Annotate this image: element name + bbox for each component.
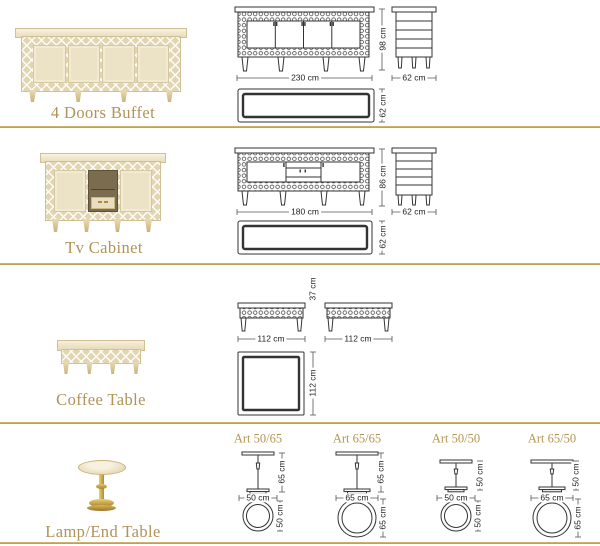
- tv-side-view-drawing: [392, 148, 436, 205]
- drawer-handle: [104, 201, 108, 203]
- tv-cabinet-caption: Tv Cabinet: [24, 238, 184, 258]
- variant4-diameter-label: 65 cm: [573, 504, 582, 531]
- variant3-height-label: 50 cm: [475, 461, 484, 488]
- section-lamp-table: Lamp/End Table Art 50/65 Art 65/65 Art 5…: [0, 425, 600, 542]
- tv-open-shelf: [88, 170, 118, 212]
- tv-door-left: [54, 170, 86, 212]
- lamp-photo-knob: [96, 484, 107, 489]
- buffet-photo-doors: [33, 45, 169, 83]
- buffet-photo-body: [21, 36, 181, 92]
- coffee-width-label: 112 cm: [255, 334, 286, 343]
- buffet-side-view-drawing: [392, 7, 436, 68]
- buffet-width-label: 230 cm: [289, 73, 321, 82]
- tv-top-view-drawing: [238, 221, 372, 254]
- coffee-leg: [86, 362, 92, 374]
- coffee-height-label: 37 cm: [308, 275, 317, 302]
- tv-leg: [114, 219, 121, 232]
- tv-side-width-label: 62 cm: [400, 207, 427, 216]
- variant1-width-label: 50 cm: [244, 493, 271, 502]
- buffet-door: [68, 45, 101, 83]
- coffee-side-width-label: 112 cm: [342, 334, 373, 343]
- variant1-height-label: 65 cm: [277, 458, 286, 485]
- buffet-door: [33, 45, 66, 83]
- buffet-height-label: 98 cm: [378, 25, 387, 52]
- tv-leg: [145, 219, 152, 232]
- tv-drawer: [91, 197, 115, 209]
- variant2-width-label: 65 cm: [343, 493, 370, 502]
- bottom-divider: [0, 542, 600, 544]
- tv-photo-legs: [52, 219, 152, 232]
- buffet-drawings: [230, 0, 600, 126]
- coffee-photo-legs: [63, 362, 139, 374]
- tv-cabinet-drawings: [230, 128, 600, 263]
- section-tv-cabinet: Tv Cabinet: [0, 128, 600, 263]
- tv-photo-inner: [54, 170, 152, 212]
- variant4-height-label: 50 cm: [571, 461, 580, 488]
- tv-front-view-drawing: [235, 148, 374, 205]
- lamp-table-caption: Lamp/End Table: [13, 522, 193, 542]
- buffet-side-width-label: 62 cm: [400, 73, 427, 82]
- coffee-leg: [63, 362, 69, 374]
- tv-door-right: [120, 170, 152, 212]
- section-divider: [0, 422, 600, 424]
- buffet-leg: [166, 90, 173, 102]
- variant1-diameter-label: 50 cm: [275, 502, 284, 529]
- buffet-front-view-drawing: [235, 7, 374, 71]
- section-coffee-table: Coffee Table: [0, 265, 600, 422]
- buffet-leg: [120, 90, 127, 102]
- lamp-photo-top: [78, 460, 126, 475]
- coffee-table-caption: Coffee Table: [21, 390, 181, 410]
- coffee-table-photo: [57, 340, 145, 382]
- tv-cabinet-photo: [40, 147, 166, 239]
- coffee-leg: [133, 362, 139, 374]
- variant2-height-label: 65 cm: [376, 458, 385, 485]
- buffet-photo-legs: [29, 90, 173, 102]
- variant3-width-label: 50 cm: [442, 493, 469, 502]
- tv-photo-body: [45, 161, 161, 221]
- buffet-photo: [15, 22, 187, 102]
- buffet-caption: 4 Doors Buffet: [23, 103, 183, 123]
- tv-leg: [52, 219, 59, 232]
- coffee-side-view-drawing: [325, 303, 392, 331]
- tv-width-label: 180 cm: [289, 207, 321, 216]
- tv-height-label: 86 cm: [378, 163, 387, 190]
- buffet-top-view-drawing: [238, 89, 374, 122]
- variant2-diameter-label: 65 cm: [378, 504, 387, 531]
- buffet-door: [137, 45, 170, 83]
- coffee-front-view-drawing: [238, 303, 305, 331]
- section-buffet: 4 Doors Buffet: [0, 0, 600, 126]
- buffet-door: [102, 45, 135, 83]
- drawer-handle: [98, 201, 102, 203]
- coffee-top-view-drawing: [238, 352, 304, 415]
- variant3-diameter-label: 50 cm: [473, 502, 482, 529]
- tv-depth-label: 62 cm: [378, 223, 387, 250]
- coffee-depth-label: 112 cm: [308, 367, 317, 398]
- tv-leg: [83, 219, 90, 232]
- lamp-photo-foot: [87, 505, 116, 511]
- variant4-width-label: 65 cm: [538, 493, 565, 502]
- coffee-leg: [110, 362, 116, 374]
- catalog-page: 4 Doors Buffet: [0, 0, 600, 546]
- lamp-table-photo: [78, 460, 126, 516]
- tv-shelf-line: [91, 189, 115, 190]
- buffet-leg: [29, 90, 36, 102]
- buffet-leg: [75, 90, 82, 102]
- buffet-depth-label: 62 cm: [378, 92, 387, 119]
